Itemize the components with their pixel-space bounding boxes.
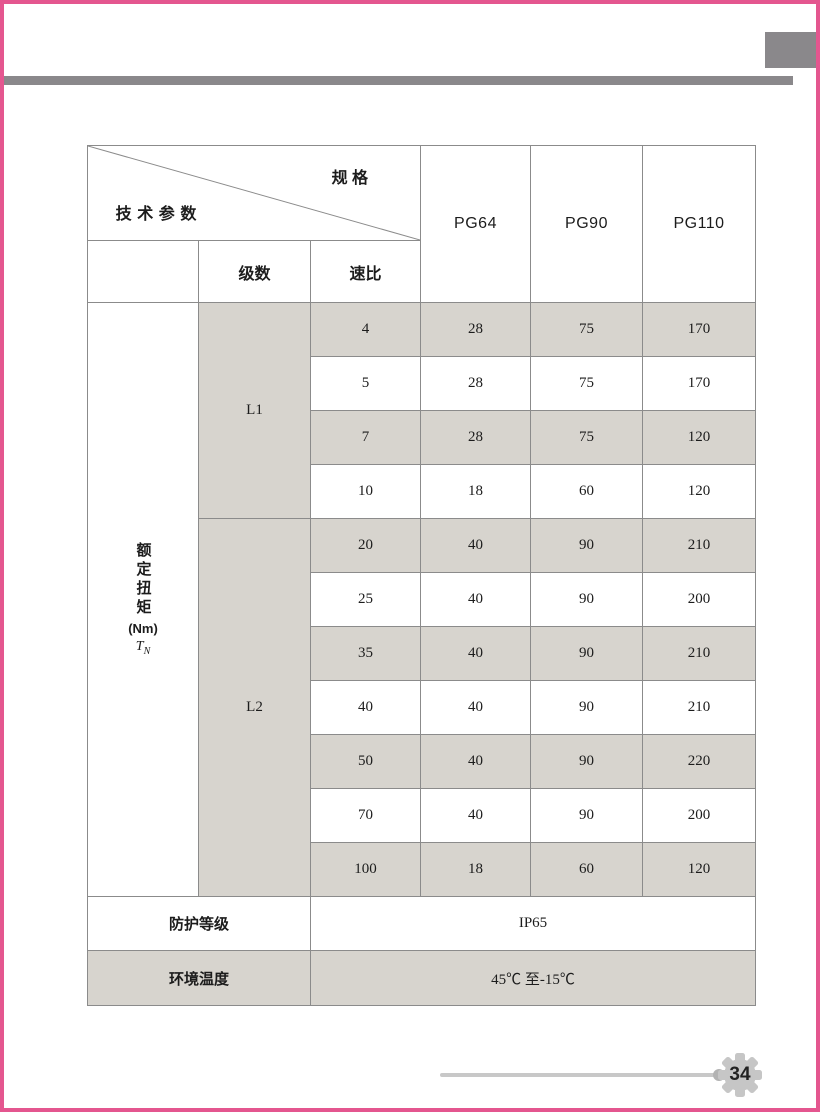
value-cell: 40 <box>421 519 531 573</box>
model-header-pg110: PG110 <box>643 146 756 303</box>
ratio-column-header: 速比 <box>311 241 421 303</box>
value-cell: 75 <box>531 411 643 465</box>
value-cell: 90 <box>531 519 643 573</box>
torque-symbol: TN <box>136 639 150 657</box>
ratio-cell: 10 <box>311 465 421 519</box>
page-number-badge: 34 <box>717 1052 763 1098</box>
protection-class-value: IP65 <box>311 897 756 951</box>
value-cell: 170 <box>643 303 756 357</box>
stage-column-header: 级数 <box>199 241 311 303</box>
value-cell: 170 <box>643 357 756 411</box>
value-cell: 120 <box>643 843 756 897</box>
value-cell: 28 <box>421 411 531 465</box>
table-row: 额定扭矩(Nm)TNL142875170 <box>88 303 756 357</box>
top-divider-bar <box>4 76 793 85</box>
ambient-temp-value: 45℃ 至-15℃ <box>311 951 756 1006</box>
value-cell: 60 <box>531 843 643 897</box>
diagonal-header-cell: 规 格 技术参数 <box>88 146 421 241</box>
model-header-pg90: PG90 <box>531 146 643 303</box>
ambient-temp-label: 环境温度 <box>88 951 311 1006</box>
value-cell: 18 <box>421 465 531 519</box>
page-number: 34 <box>717 1052 763 1098</box>
diagonal-line <box>88 146 420 240</box>
value-cell: 28 <box>421 357 531 411</box>
value-cell: 75 <box>531 357 643 411</box>
value-cell: 18 <box>421 843 531 897</box>
value-cell: 120 <box>643 465 756 519</box>
value-cell: 120 <box>643 411 756 465</box>
ratio-cell: 20 <box>311 519 421 573</box>
torque-unit-label: (Nm) <box>128 621 158 636</box>
corner-tab-block <box>765 32 816 68</box>
protection-class-label: 防护等级 <box>88 897 311 951</box>
footer-rule <box>440 1073 718 1077</box>
value-cell: 40 <box>421 573 531 627</box>
model-header-pg64: PG64 <box>421 146 531 303</box>
value-cell: 40 <box>421 735 531 789</box>
value-cell: 210 <box>643 519 756 573</box>
rated-torque-vertical-text: 额定扭矩 <box>136 542 151 618</box>
value-cell: 90 <box>531 627 643 681</box>
value-cell: 200 <box>643 573 756 627</box>
spec-header-label: 规 格 <box>332 164 368 188</box>
stage-cell-l2: L2 <box>199 519 311 897</box>
value-cell: 200 <box>643 789 756 843</box>
value-cell: 220 <box>643 735 756 789</box>
rated-torque-label-cell: 额定扭矩(Nm)TN <box>88 303 199 897</box>
ratio-cell: 35 <box>311 627 421 681</box>
value-cell: 40 <box>421 627 531 681</box>
ratio-cell: 7 <box>311 411 421 465</box>
ratio-cell: 70 <box>311 789 421 843</box>
ratio-cell: 4 <box>311 303 421 357</box>
table-row-temperature: 环境温度 45℃ 至-15℃ <box>88 951 756 1006</box>
stage-cell-l1: L1 <box>199 303 311 519</box>
value-cell: 90 <box>531 681 643 735</box>
ratio-cell: 25 <box>311 573 421 627</box>
value-cell: 90 <box>531 735 643 789</box>
ratio-cell: 5 <box>311 357 421 411</box>
catalog-page: 规 格 技术参数 PG64 PG90 PG110 级数 速比 额定扭矩(Nm)T… <box>0 0 820 1112</box>
table-row-protection: 防护等级 IP65 <box>88 897 756 951</box>
value-cell: 28 <box>421 303 531 357</box>
ratio-cell: 50 <box>311 735 421 789</box>
value-cell: 75 <box>531 303 643 357</box>
table-header-row: 规 格 技术参数 PG64 PG90 PG110 <box>88 146 756 241</box>
value-cell: 40 <box>421 681 531 735</box>
ratio-cell: 40 <box>311 681 421 735</box>
tech-params-label: 技术参数 <box>110 200 202 224</box>
value-cell: 40 <box>421 789 531 843</box>
value-cell: 60 <box>531 465 643 519</box>
value-cell: 90 <box>531 573 643 627</box>
value-cell: 210 <box>643 681 756 735</box>
value-cell: 90 <box>531 789 643 843</box>
empty-header-cell <box>88 241 199 303</box>
ratio-cell: 100 <box>311 843 421 897</box>
value-cell: 210 <box>643 627 756 681</box>
spec-table: 规 格 技术参数 PG64 PG90 PG110 级数 速比 额定扭矩(Nm)T… <box>87 145 756 1006</box>
